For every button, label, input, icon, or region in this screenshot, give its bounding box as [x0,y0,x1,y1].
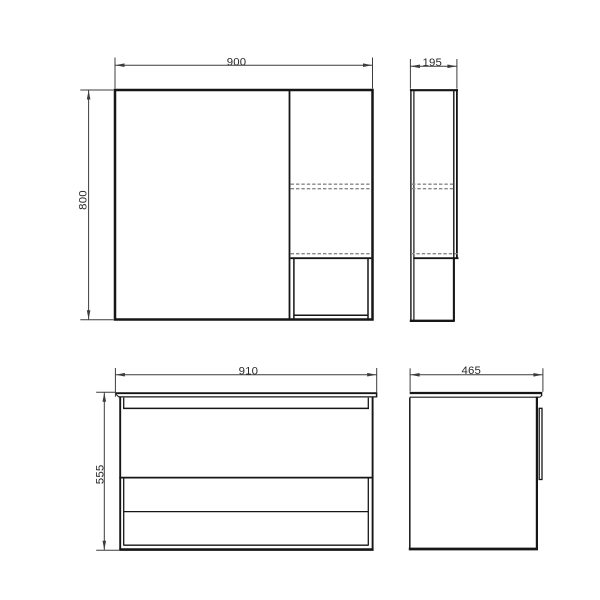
svg-text:900: 900 [227,56,247,68]
svg-text:465: 465 [461,365,481,377]
svg-text:800: 800 [78,190,90,210]
svg-text:195: 195 [422,57,442,69]
svg-text:555: 555 [94,465,106,485]
svg-text:910: 910 [239,366,259,378]
